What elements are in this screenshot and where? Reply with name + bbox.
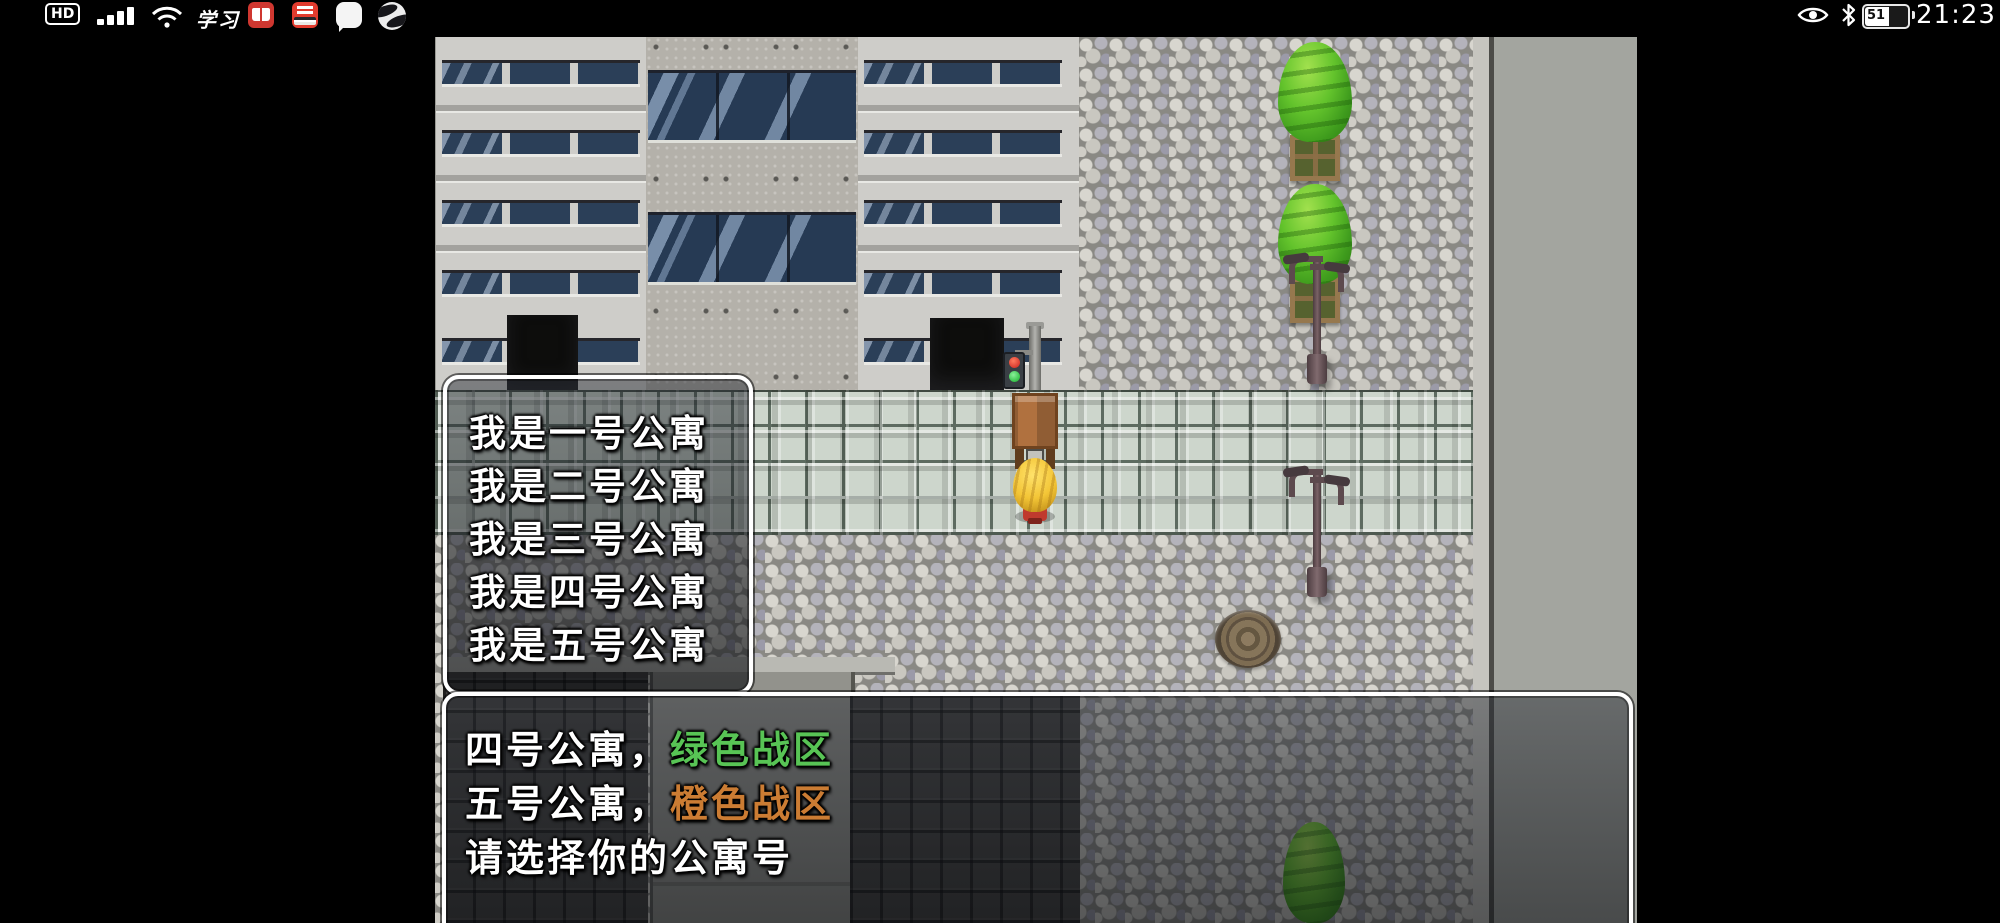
window-band (442, 270, 640, 297)
cobblestone-path-upper (1079, 37, 1473, 390)
manhole-cover (1215, 610, 1281, 668)
choice-option-3[interactable]: 我是三号公寓 (469, 513, 749, 566)
traffic-light (1003, 322, 1045, 390)
messages-app-icon (336, 2, 362, 28)
red-light (1009, 357, 1020, 368)
study-mode-icon: 学习 (196, 4, 240, 33)
message-line-2: 五号公寓，橙色战区 (465, 777, 1629, 831)
game-viewport[interactable]: 我是一号公寓 我是二号公寓 我是三号公寓 我是四号公寓 我是五号公寓 四号公寓，… (435, 37, 1637, 923)
cellular-signal-icon (97, 6, 137, 25)
wifi-icon (150, 4, 184, 28)
window-band (864, 130, 1062, 157)
battery-indicator: 51 (1862, 4, 1910, 29)
message-line1-highlight: 绿色战区 (670, 728, 834, 772)
message-line-1: 四号公寓，绿色战区 (465, 723, 1629, 777)
hd-icon: HD (45, 3, 80, 25)
video-app-icon (292, 2, 318, 28)
choice-option-5[interactable]: 我是五号公寓 (469, 619, 749, 672)
message-line-3: 请选择你的公寓号 (465, 831, 1629, 885)
choice-option-4[interactable]: 我是四号公寓 (469, 566, 749, 619)
doorway-right (930, 318, 1004, 390)
street-lamp (1283, 467, 1350, 600)
message-line2-highlight: 橙色战区 (670, 782, 834, 826)
tree-canopy (1278, 42, 1352, 142)
window-band (442, 130, 640, 157)
window-band (864, 270, 1062, 297)
window-band (864, 60, 1062, 87)
books-app-icon (248, 2, 274, 28)
browser-app-icon (378, 2, 406, 30)
window-band (442, 200, 640, 227)
glass-panel-row (648, 70, 856, 143)
choice-option-1[interactable]: 我是一号公寓 (469, 407, 749, 460)
street-tree (1278, 42, 1352, 187)
glass-curtain-section (646, 37, 858, 390)
message-window[interactable]: 四号公寓，绿色战区 五号公寓，橙色战区 请选择你的公寓号 (442, 692, 1633, 923)
status-bar: HD 学习 51 21:23 (0, 0, 2000, 30)
bluetooth-icon (1841, 3, 1856, 27)
glass-panel-row (648, 212, 856, 285)
message-line2-text: 五号公寓， (465, 782, 670, 826)
message-line1-text: 四号公寓， (465, 728, 670, 772)
window-band (442, 60, 640, 87)
apartment-building (436, 37, 1079, 390)
window-band (864, 200, 1062, 227)
eye-comfort-icon (1797, 5, 1829, 25)
green-light (1009, 371, 1020, 382)
street-lamp (1283, 254, 1350, 387)
choice-window[interactable]: 我是一号公寓 我是二号公寓 我是三号公寓 我是四号公寓 我是五号公寓 (443, 375, 753, 695)
choice-option-2[interactable]: 我是二号公寓 (469, 460, 749, 513)
player-character (1013, 458, 1057, 524)
status-clock: 21:23 (1916, 0, 1996, 30)
battery-percent: 51 (1867, 8, 1885, 23)
